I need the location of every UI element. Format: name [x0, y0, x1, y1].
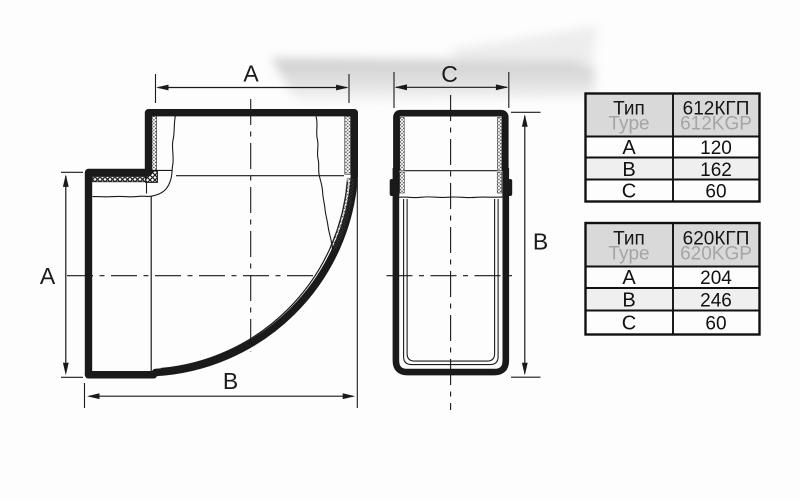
svg-text:B: B [223, 368, 238, 394]
svg-text:C: C [622, 313, 636, 335]
svg-text:Type: Type [608, 244, 649, 265]
svg-text:A: A [622, 137, 636, 159]
svg-text:C: C [622, 181, 636, 203]
svg-text:B: B [533, 229, 548, 255]
svg-text:A: A [622, 267, 636, 289]
svg-text:204: 204 [700, 268, 732, 289]
svg-text:120: 120 [700, 138, 732, 159]
svg-text:C: C [441, 61, 458, 87]
svg-text:B: B [622, 159, 635, 181]
svg-text:60: 60 [705, 182, 726, 203]
svg-text:162: 162 [700, 160, 732, 181]
svg-text:A: A [40, 263, 56, 289]
svg-text:A: A [243, 61, 259, 87]
svg-text:B: B [622, 290, 635, 312]
svg-text:Type: Type [608, 114, 649, 135]
svg-text:60: 60 [705, 314, 726, 335]
svg-text:612KGP: 612KGP [680, 114, 752, 135]
svg-text:620KGP: 620KGP [680, 244, 752, 265]
svg-text:246: 246 [700, 291, 732, 312]
